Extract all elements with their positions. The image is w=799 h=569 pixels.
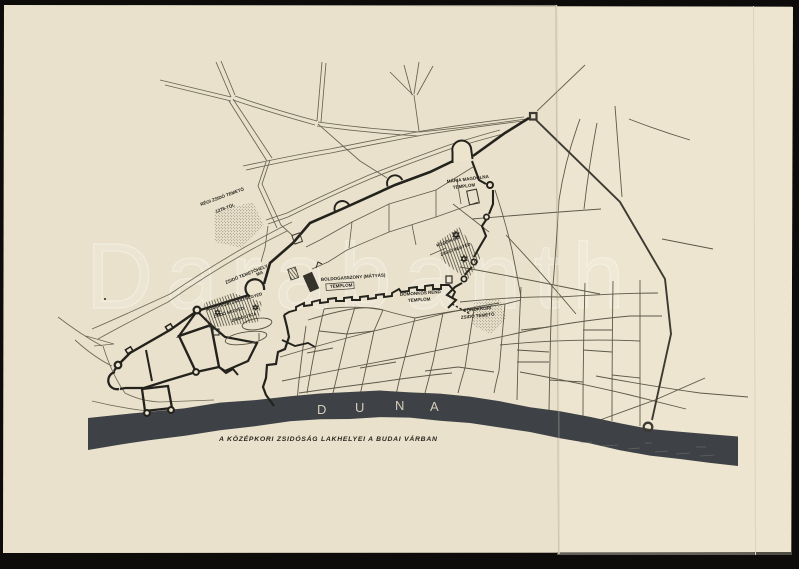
svg-text:U: U	[355, 400, 364, 415]
svg-text:D: D	[317, 402, 326, 417]
svg-text:A: A	[430, 399, 439, 414]
svg-text:N: N	[395, 398, 404, 413]
svg-text:A KÖZÉPKORI ZSIDÓSÁG LAKHELYEI: A KÖZÉPKORI ZSIDÓSÁG LAKHELYEI A BUDAI V…	[218, 434, 438, 443]
